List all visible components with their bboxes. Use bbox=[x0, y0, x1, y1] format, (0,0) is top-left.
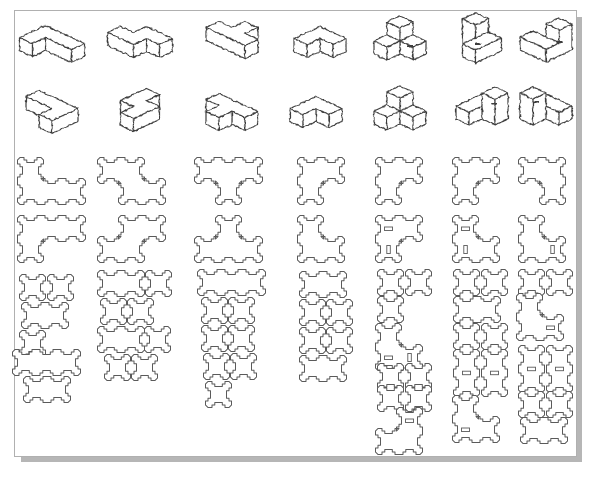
flat-panel bbox=[454, 297, 501, 323]
flat-panel bbox=[453, 396, 500, 443]
flat-panel bbox=[378, 270, 404, 296]
flat-panel bbox=[519, 216, 566, 263]
iso-piece bbox=[26, 91, 78, 134]
slot-hole bbox=[385, 227, 393, 231]
slot-mark bbox=[557, 41, 563, 43]
flat-panel bbox=[517, 294, 564, 341]
flat-panel bbox=[145, 327, 171, 353]
flat-panel bbox=[105, 355, 131, 381]
slot-hole bbox=[463, 371, 471, 375]
flat-panel bbox=[482, 324, 508, 350]
flat-panel bbox=[24, 377, 71, 403]
flat-panel bbox=[300, 300, 326, 326]
flat-panel bbox=[454, 270, 480, 296]
flat-panel bbox=[547, 270, 573, 296]
slot-hole bbox=[408, 354, 412, 362]
flat-panel bbox=[98, 216, 166, 263]
flat-panel bbox=[101, 299, 127, 325]
slot-hole bbox=[462, 428, 470, 432]
flat-panel bbox=[519, 392, 545, 418]
slot-hole bbox=[547, 326, 555, 330]
slot-hole bbox=[556, 367, 564, 371]
flat-panel bbox=[521, 418, 568, 444]
flat-panels-layer bbox=[13, 158, 573, 455]
flat-panel bbox=[18, 216, 86, 263]
slot-hole bbox=[385, 356, 393, 360]
flat-panel bbox=[132, 355, 158, 381]
flat-panel bbox=[206, 382, 232, 408]
iso-piece bbox=[108, 27, 173, 58]
flat-panel bbox=[547, 392, 573, 418]
flat-panel bbox=[454, 324, 480, 350]
flat-panel bbox=[298, 216, 345, 263]
flat-panel bbox=[229, 298, 255, 324]
slot-hole bbox=[387, 246, 391, 254]
slot-hole bbox=[462, 227, 470, 231]
flat-panel bbox=[376, 158, 423, 205]
iso-piece bbox=[520, 18, 572, 62]
iso-piece bbox=[374, 86, 426, 130]
flat-panel bbox=[195, 216, 263, 263]
flat-panel bbox=[482, 270, 508, 296]
flat-panel bbox=[300, 272, 347, 298]
flat-panel bbox=[519, 346, 545, 393]
slot-hole bbox=[528, 367, 536, 371]
flat-panel bbox=[202, 298, 228, 324]
flat-panel bbox=[453, 158, 500, 205]
flat-panel bbox=[202, 326, 228, 352]
flat-panel bbox=[519, 270, 545, 296]
flat-panel bbox=[376, 408, 423, 455]
flat-panel bbox=[453, 216, 500, 263]
iso-piece bbox=[520, 87, 572, 125]
flat-panel bbox=[195, 158, 263, 205]
slot-mark bbox=[491, 103, 497, 105]
flat-panel bbox=[198, 270, 266, 296]
flat-panel bbox=[229, 326, 255, 352]
flat-panel bbox=[98, 158, 166, 205]
flat-panel bbox=[300, 328, 326, 354]
isometric-views-layer bbox=[20, 13, 573, 134]
slot-hole bbox=[491, 371, 499, 375]
flat-panel bbox=[406, 270, 432, 296]
iso-piece bbox=[456, 87, 508, 125]
slot-mark bbox=[533, 101, 539, 103]
flat-panel bbox=[547, 346, 573, 393]
flat-panel bbox=[128, 299, 154, 325]
iso-piece bbox=[290, 97, 342, 128]
flat-panel bbox=[519, 158, 566, 205]
flat-panel bbox=[482, 350, 508, 397]
flat-panel bbox=[98, 271, 145, 297]
flat-panel bbox=[20, 275, 46, 301]
page bbox=[0, 0, 600, 479]
flat-panel bbox=[18, 158, 86, 205]
slot-mark bbox=[475, 43, 481, 45]
flat-panel bbox=[378, 297, 404, 323]
iso-piece bbox=[463, 13, 502, 63]
flat-panel bbox=[204, 354, 230, 380]
flat-panel bbox=[146, 271, 172, 297]
slot-hole bbox=[406, 419, 414, 423]
flat-panel bbox=[327, 328, 353, 354]
flat-panel bbox=[22, 303, 69, 329]
flat-panel bbox=[48, 275, 74, 301]
slot-hole bbox=[551, 246, 555, 254]
iso-piece bbox=[374, 16, 426, 60]
diagram-svg bbox=[0, 0, 600, 479]
flat-panel bbox=[454, 350, 480, 397]
flat-panel bbox=[376, 216, 423, 263]
flat-panel bbox=[98, 327, 145, 353]
flat-panel bbox=[298, 158, 345, 205]
iso-piece bbox=[206, 94, 258, 131]
iso-piece bbox=[206, 22, 258, 59]
slot-mark bbox=[407, 45, 413, 47]
flat-panel bbox=[300, 356, 347, 382]
iso-piece bbox=[294, 27, 346, 58]
iso-piece bbox=[20, 26, 85, 63]
flat-panel bbox=[231, 354, 257, 380]
slot-hole bbox=[464, 246, 468, 254]
flat-panel bbox=[327, 300, 353, 326]
iso-piece bbox=[121, 89, 160, 132]
